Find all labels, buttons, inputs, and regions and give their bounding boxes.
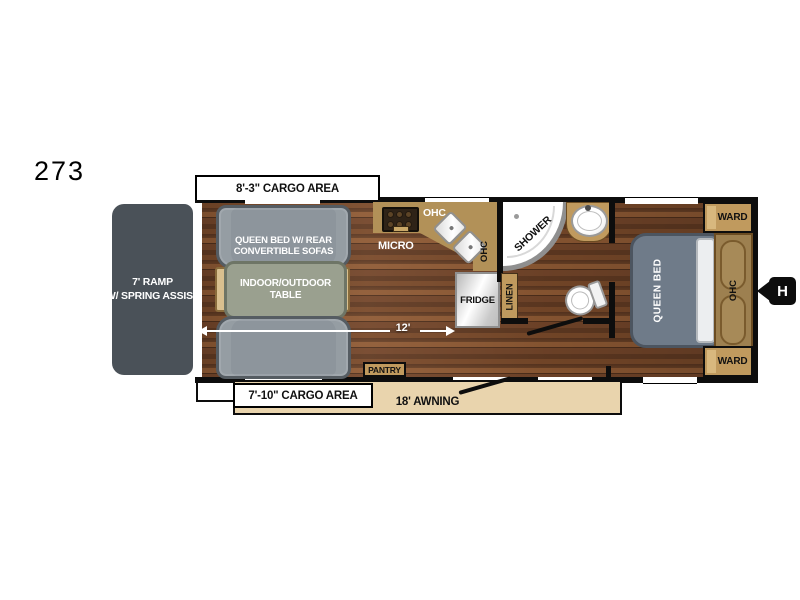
wall-bath-bedroom-top bbox=[609, 202, 615, 243]
hitch-icon: H bbox=[769, 277, 796, 305]
table-label: INDOOR/OUTDOOR TABLE bbox=[240, 278, 331, 302]
cargo-callout-line-v bbox=[196, 382, 198, 402]
convertible-sofa-front: QUEEN BED W/ REAR CONVERTIBLE SOFAS bbox=[216, 205, 351, 269]
cargo-callout-line-h bbox=[196, 400, 234, 402]
indoor-outdoor-table: INDOOR/OUTDOOR TABLE bbox=[224, 261, 347, 319]
ohc-sink-cabinet: OHC bbox=[474, 230, 496, 272]
dimension-line-left bbox=[206, 330, 390, 332]
model-number: 273 bbox=[34, 156, 85, 187]
linen-cabinet: LINEN bbox=[501, 273, 518, 320]
convertible-sofa-rear bbox=[216, 316, 351, 379]
queen-bed-label-wrap: QUEEN BED bbox=[636, 238, 680, 343]
microwave-label: MICRO bbox=[378, 240, 414, 252]
ramp-label: 7' RAMP W/ SPRING ASSIST bbox=[106, 276, 199, 302]
shower-label-wrap: SHOWER bbox=[503, 202, 563, 266]
wardrobe-front: WARD bbox=[703, 202, 753, 233]
wall-stub-bedroom bbox=[606, 366, 611, 378]
window-bottom-bedroom bbox=[643, 377, 697, 384]
cargo-area-bottom-callout: 7'-10" CARGO AREA bbox=[233, 383, 373, 408]
ramp-door: 7' RAMP W/ SPRING ASSIST bbox=[112, 204, 193, 375]
faucet-icon bbox=[585, 205, 591, 211]
ohc-bed-label-wrap: OHC bbox=[718, 250, 750, 330]
cooktop-controls-icon bbox=[393, 226, 409, 232]
floorplan-canvas: 273 7' RAMP W/ SPRING ASSIST QUEEN BED W… bbox=[0, 0, 800, 600]
dimension-arrow-left bbox=[198, 326, 207, 336]
dimension-arrow-right bbox=[446, 326, 455, 336]
dimension-label: 12' bbox=[388, 322, 418, 334]
fridge: FRIDGE bbox=[455, 272, 500, 328]
dimension-line-right bbox=[420, 330, 448, 332]
wall-linen-cap bbox=[501, 318, 528, 324]
wall-toilet bbox=[583, 318, 615, 324]
wall-bath-bedroom-bottom bbox=[609, 282, 615, 338]
pantry-cabinet: PANTRY bbox=[363, 362, 406, 377]
cargo-area-top-callout: 8'-3" CARGO AREA bbox=[195, 175, 380, 200]
bed-pillow bbox=[696, 238, 715, 343]
wardrobe-rear: WARD bbox=[703, 346, 753, 377]
sofa-label: QUEEN BED W/ REAR CONVERTIBLE SOFAS bbox=[234, 235, 334, 258]
window-top-bedroom bbox=[625, 197, 698, 204]
